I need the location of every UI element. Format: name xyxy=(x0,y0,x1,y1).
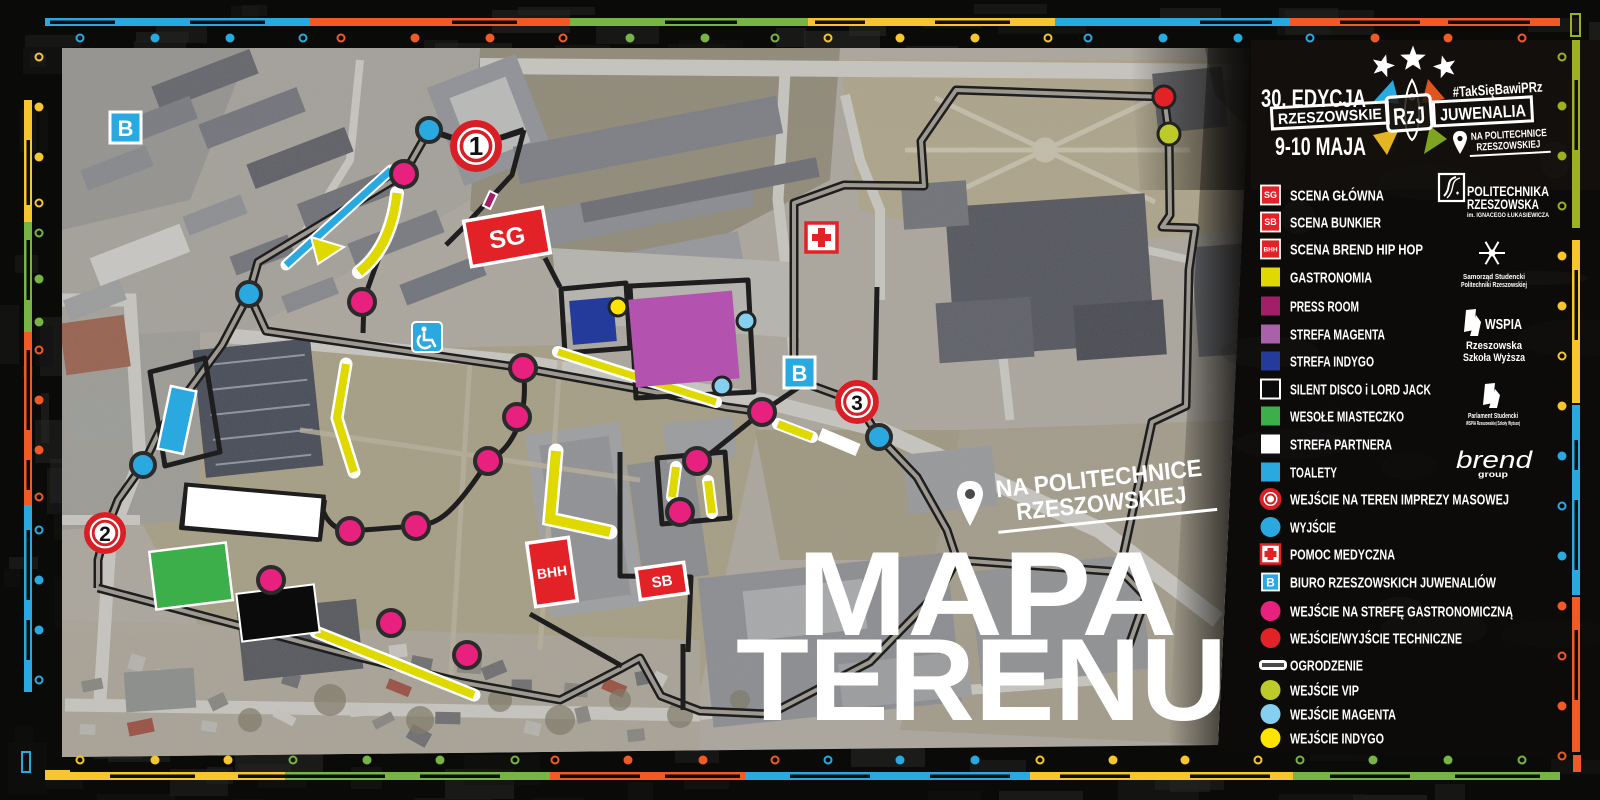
svg-text:WESOŁE MIASTECZKO: WESOŁE MIASTECZKO xyxy=(1290,408,1404,425)
svg-text:WEJŚCIE INDYGO: WEJŚCIE INDYGO xyxy=(1290,729,1384,747)
svg-text:Rzeszowska: Rzeszowska xyxy=(1466,340,1523,352)
svg-text:WEJŚCIE NA STREFĘ GASTRONOMICZ: WEJŚCIE NA STREFĘ GASTRONOMICZNĄ xyxy=(1290,602,1513,620)
svg-text:SCENA GŁÓWNA: SCENA GŁÓWNA xyxy=(1290,186,1384,204)
svg-text:SILENT DISCO i LORD JACK: SILENT DISCO i LORD JACK xyxy=(1290,381,1431,398)
svg-text:SG: SG xyxy=(1264,190,1277,200)
svg-text:WEJŚCIE MAGENTA: WEJŚCIE MAGENTA xyxy=(1290,705,1396,723)
svg-text:Szkoła Wyższa: Szkoła Wyższa xyxy=(1463,352,1526,364)
svg-text:group: group xyxy=(1478,470,1508,479)
svg-text:BHH: BHH xyxy=(1263,246,1277,253)
svg-text:Politechniki Rzeszowskiej: Politechniki Rzeszowskiej xyxy=(1461,280,1527,289)
svg-text:WYJŚCIE: WYJŚCIE xyxy=(1290,518,1336,536)
svg-text:B: B xyxy=(1266,576,1275,590)
svg-text:SCENA BREND HIP HOP: SCENA BREND HIP HOP xyxy=(1290,241,1423,258)
svg-text:RZESZOWSKA: RZESZOWSKA xyxy=(1467,197,1539,212)
svg-text:3: 3 xyxy=(851,392,863,415)
svg-text:RzJ: RzJ xyxy=(1392,102,1426,131)
svg-text:PRESS ROOM: PRESS ROOM xyxy=(1290,298,1359,315)
svg-text:1: 1 xyxy=(469,131,483,161)
svg-text:STREFA PARTNERA: STREFA PARTNERA xyxy=(1290,436,1392,453)
svg-text:WEJŚCIE NA TEREN IMPREZY MASOW: WEJŚCIE NA TEREN IMPREZY MASOWEJ xyxy=(1290,490,1509,508)
svg-text:9-10 MAJA: 9-10 MAJA xyxy=(1275,133,1366,161)
svg-text:STREFA INDYGO: STREFA INDYGO xyxy=(1290,353,1374,370)
svg-text:TERENU: TERENU xyxy=(736,614,1227,745)
svg-text:WEJŚCIE VIP: WEJŚCIE VIP xyxy=(1290,681,1359,699)
svg-text:SCENA BUNKIER: SCENA BUNKIER xyxy=(1290,214,1381,231)
svg-text:SB: SB xyxy=(651,572,674,592)
svg-text:WSPIA Rzeszowskiej Szkoły Wyżs: WSPIA Rzeszowskiej Szkoły Wyższej xyxy=(1466,421,1520,427)
svg-text:2: 2 xyxy=(99,523,111,546)
svg-text:OGRODZENIE: OGRODZENIE xyxy=(1290,657,1363,674)
svg-text:B: B xyxy=(118,116,134,141)
svg-text:BIURO RZESZOWSKICH JUWENALIÓW: BIURO RZESZOWSKICH JUWENALIÓW xyxy=(1290,573,1497,591)
svg-text:WEJŚCIE/WYJŚCIE TECHNICZNE: WEJŚCIE/WYJŚCIE TECHNICZNE xyxy=(1290,629,1462,647)
svg-text:im. IGNACEGO ŁUKASIEWICZA: im. IGNACEGO ŁUKASIEWICZA xyxy=(1467,212,1549,219)
svg-text:TOALETY: TOALETY xyxy=(1290,464,1337,481)
svg-text:Parlament Studencki: Parlament Studencki xyxy=(1468,413,1518,420)
svg-text:POMOC MEDYCZNA: POMOC MEDYCZNA xyxy=(1290,546,1395,563)
svg-text:GASTRONOMIA: GASTRONOMIA xyxy=(1290,269,1372,286)
svg-text:WSPIA: WSPIA xyxy=(1485,316,1522,333)
svg-text:B: B xyxy=(792,361,808,386)
svg-text:STREFA MAGENTA: STREFA MAGENTA xyxy=(1290,326,1385,343)
svg-text:SB: SB xyxy=(1264,217,1277,227)
